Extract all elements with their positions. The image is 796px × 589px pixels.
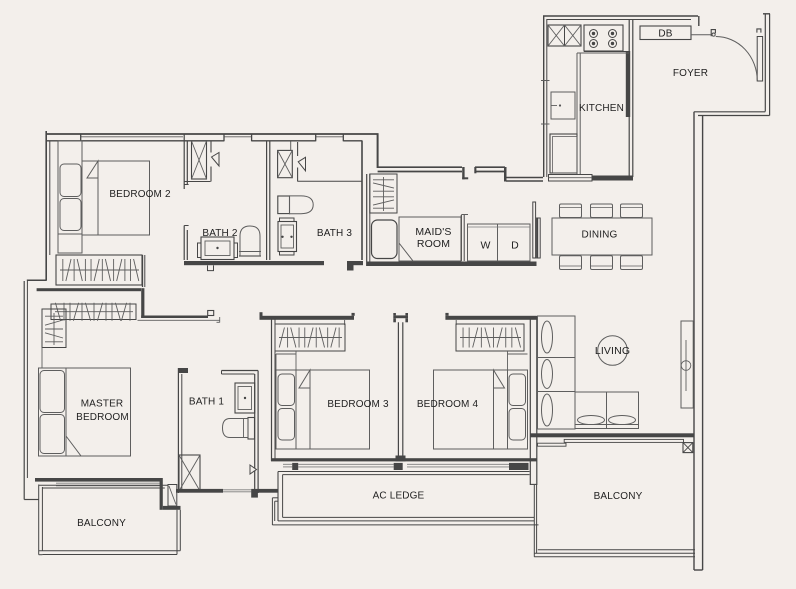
svg-text:MASTER: MASTER	[81, 399, 124, 410]
svg-text:BATH 2: BATH 2	[202, 228, 237, 239]
svg-text:BATH 1: BATH 1	[189, 397, 224, 408]
svg-text:MAID'S: MAID'S	[415, 226, 451, 238]
svg-text:FOYER: FOYER	[673, 68, 708, 79]
svg-text:BEDROOM 3: BEDROOM 3	[327, 399, 389, 410]
svg-text:BEDROOM: BEDROOM	[76, 412, 129, 423]
svg-text:BEDROOM 4: BEDROOM 4	[417, 399, 479, 410]
svg-text:D: D	[511, 240, 519, 252]
svg-text:DINING: DINING	[582, 230, 618, 241]
svg-text:AC LEDGE: AC LEDGE	[373, 491, 425, 502]
svg-text:W: W	[480, 240, 490, 252]
svg-text:BATH 3: BATH 3	[317, 228, 352, 239]
svg-text:ROOM: ROOM	[417, 238, 450, 250]
svg-text:LIVING: LIVING	[595, 345, 630, 357]
svg-text:KITCHEN: KITCHEN	[579, 103, 624, 114]
svg-text:DB: DB	[658, 29, 672, 40]
svg-text:BEDROOM 2: BEDROOM 2	[109, 189, 171, 200]
svg-text:BALCONY: BALCONY	[594, 491, 643, 502]
svg-text:BALCONY: BALCONY	[77, 518, 126, 529]
